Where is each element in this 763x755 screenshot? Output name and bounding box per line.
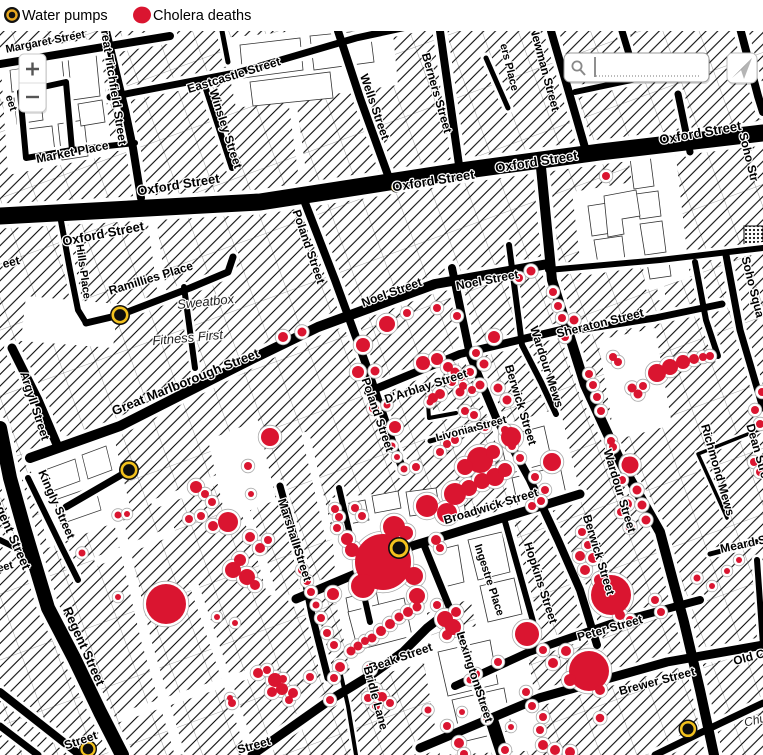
svg-text:Water pumps: Water pumps [22, 8, 108, 24]
svg-text:Cholera deaths: Cholera deaths [153, 8, 251, 24]
